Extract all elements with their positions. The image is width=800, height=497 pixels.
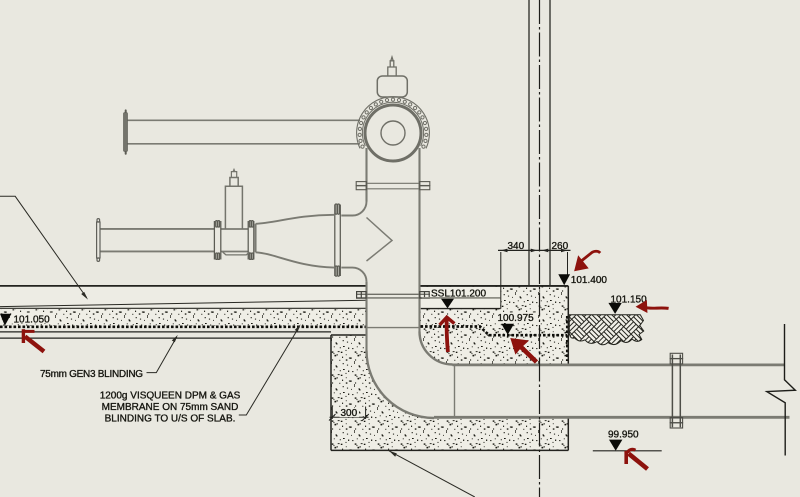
svg-text:340: 340 bbox=[508, 241, 525, 252]
svg-text:260: 260 bbox=[552, 241, 569, 252]
svg-text:MEMBRANE ON 75mm SAND: MEMBRANE ON 75mm SAND bbox=[102, 402, 239, 413]
svg-text:BLINDING TO U/S OF SLAB.: BLINDING TO U/S OF SLAB. bbox=[105, 413, 236, 424]
svg-text:99.950: 99.950 bbox=[608, 430, 639, 441]
svg-text:75mm GEN3 BLINDING: 75mm GEN3 BLINDING bbox=[40, 369, 143, 380]
svg-text:1200g VISQUEEN DPM & GAS: 1200g VISQUEEN DPM & GAS bbox=[100, 391, 241, 402]
svg-text:101.400: 101.400 bbox=[571, 275, 608, 286]
svg-text:100.975: 100.975 bbox=[498, 313, 535, 324]
svg-text:101.050: 101.050 bbox=[14, 314, 51, 325]
svg-text:SSL101.200: SSL101.200 bbox=[431, 288, 486, 299]
svg-text:300: 300 bbox=[341, 408, 358, 419]
